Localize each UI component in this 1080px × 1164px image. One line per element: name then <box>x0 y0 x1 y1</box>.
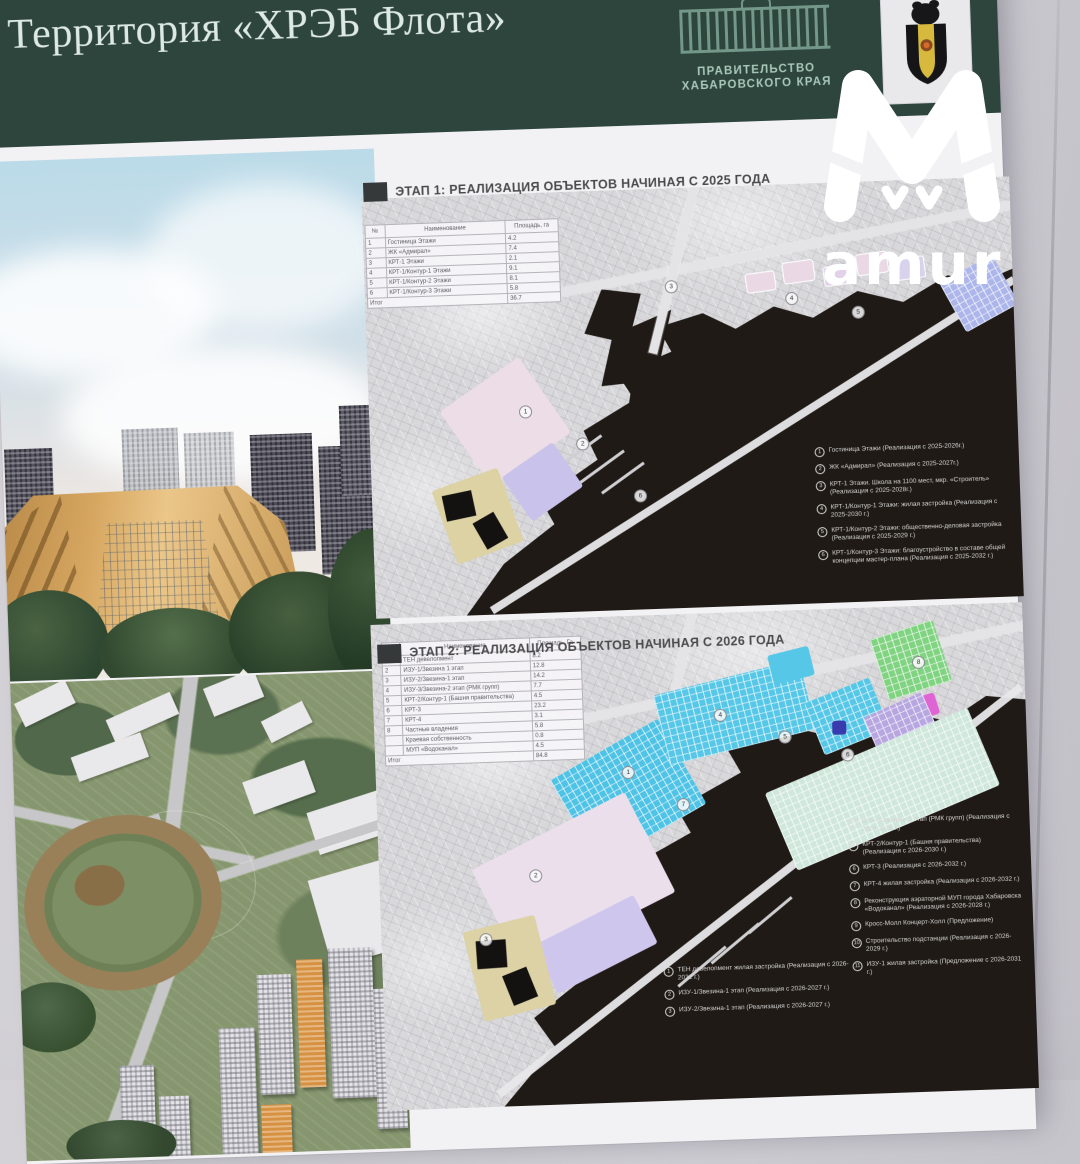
parcel-green <box>870 619 953 700</box>
dark-structure <box>502 967 538 1006</box>
park-center <box>71 861 127 910</box>
legend-item: 9Кросс-Молл Концерт-Холл (Предложение) <box>851 915 1023 931</box>
parcel-darkblue <box>832 720 846 734</box>
orange-tower <box>261 1104 293 1153</box>
legend-item: 4КРТ-1/Контур-1 Этажи: жилая застройка (… <box>816 498 1006 521</box>
residential-tower <box>218 1027 258 1154</box>
legend-item: 5КРТ-2/Контур-1 (Башня правительства) (Р… <box>848 835 1020 857</box>
legend-item: 7КРТ-4 жилая застройка (Реализация с 202… <box>850 875 1022 891</box>
stage2-legend-left: 1ТЕН девелопмент жилая застройка (Реализ… <box>664 960 856 1024</box>
legend-item: 6КРТ-1/Контур-3 Этажи: благоустройство в… <box>818 544 1008 567</box>
amur-logo-m-icon <box>806 56 1018 228</box>
white-building <box>106 692 180 742</box>
government-building-icon <box>679 0 831 56</box>
stage2-marker-square <box>377 644 402 664</box>
legend-item: 10Строительство подстанции (Реализация с… <box>852 932 1024 954</box>
legend-item: 2ЖК «Адмирал» (Реализация с 2025-2027г.) <box>815 458 1005 475</box>
map-marker: 2 <box>576 437 589 450</box>
amur-watermark: amur <box>806 56 1036 316</box>
stage1-legend: 1Гостиница Этажи (Реализация с 2025-2026… <box>814 441 1008 574</box>
page-title: Территория «ХРЭБ Флота» <box>7 0 507 59</box>
white-building <box>71 732 149 782</box>
amur-wordmark: amur <box>822 235 1036 293</box>
legend-item: 6КРТ-3 (Реализация с 2026-2032 г.) <box>849 858 1021 874</box>
white-building <box>14 679 76 727</box>
render-top-image <box>0 149 392 682</box>
stage1-table: № Наименование Площадь, га 1Гостиница Эт… <box>364 218 561 309</box>
legend-item: 2ИЗУ-1/Звезина-1 этап (Реализация с 2026… <box>664 983 854 1000</box>
legend-item: 5КРТ-1/Контур-2 Этажи: общественно-делов… <box>817 521 1007 544</box>
white-building <box>203 670 264 717</box>
stage2-map: 1 2 3 4 5 6 7 8 № Наименование Площадь, … <box>370 602 1039 1110</box>
stage1-marker-square <box>363 182 388 202</box>
white-building <box>242 760 316 815</box>
outlined-block <box>744 270 776 294</box>
legend-item: 3ИЗУ-2/Звезина-1 этап (Реализация с 2026… <box>665 1000 855 1017</box>
render-bottom-image <box>10 670 410 1161</box>
legend-item: 3КРТ-1 Этажи. Школа на 1100 мест, мкр. «… <box>816 475 1006 498</box>
dark-structure <box>473 512 509 550</box>
tree <box>10 981 97 1054</box>
white-building <box>261 701 313 743</box>
map-marker: 3 <box>665 280 678 293</box>
parcel-cyan <box>767 646 815 685</box>
residential-tower <box>328 947 377 1098</box>
orange-tower <box>296 959 326 1088</box>
residential-tower <box>257 974 295 1095</box>
building-columns <box>679 5 830 54</box>
dark-structure <box>442 490 477 522</box>
legend-item: 8Реконструкция аэраторной МУП города Хаб… <box>850 892 1022 914</box>
stage2-legend-right: 4ИЗУ-3/Звезина 2 этап (РМК групп) (Реали… <box>847 812 1025 984</box>
legend-item: 11ИЗУ-1 жилая застройка (Предложение с 2… <box>852 955 1024 977</box>
